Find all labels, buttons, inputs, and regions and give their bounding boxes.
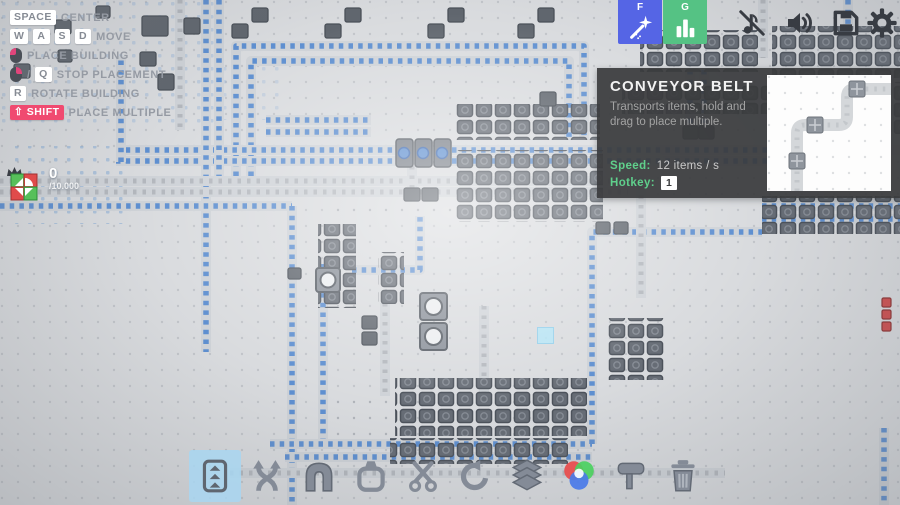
hint-place-multiple: ⇧ SHIFT PLACE MULTIPLE (10, 105, 171, 120)
toolbar-item-balancer[interactable] (241, 450, 293, 502)
tunnel-icon (300, 457, 338, 495)
key-r: R (10, 86, 26, 101)
goal-count: 0 (49, 166, 79, 181)
hint-center: SPACE CENTER (10, 10, 171, 25)
toolbar-item-rotater[interactable] (449, 450, 501, 502)
crowned-shape-icon (5, 164, 43, 202)
toolbar-item-tunnel[interactable] (293, 450, 345, 502)
speaker-icon (784, 7, 816, 39)
stacker-icon (508, 457, 546, 495)
toolbar-item-cutter[interactable] (397, 450, 449, 502)
settings-button[interactable] (866, 7, 898, 39)
mixer-icon (560, 457, 598, 495)
key-a: A (33, 29, 49, 44)
sound-button[interactable] (784, 7, 816, 39)
bar-chart-icon (670, 13, 700, 41)
painter-icon (612, 457, 650, 495)
gear-icon (866, 7, 898, 39)
key-space: SPACE (10, 10, 56, 25)
building-toolbar (189, 450, 709, 502)
mouse-right-click-icon (10, 67, 22, 82)
balancer-icon (248, 457, 286, 495)
hint-rotate: R ROTATE BUILDING (10, 86, 171, 101)
cursor-tile-highlight (538, 328, 553, 343)
belt-preview-image (767, 75, 891, 191)
music-button[interactable] (736, 8, 768, 40)
goal-indicator: 0 /10.000 (5, 164, 79, 202)
toolbar-item-extractor[interactable] (345, 450, 397, 502)
goal-target: /10.000 (49, 181, 79, 191)
hotkey-keycap: 1 (661, 176, 677, 190)
speed-value: 12 items / s (657, 160, 719, 172)
music-note-muted-icon (737, 8, 767, 38)
save-button[interactable] (830, 7, 862, 39)
toolbar-item-belt[interactable] (189, 450, 241, 502)
magic-wand-icon (625, 13, 655, 41)
key-w: W (10, 29, 28, 44)
toolbar-item-stacker[interactable] (501, 450, 553, 502)
keybind-hints: SPACE CENTER W A S D MOVE PLACE BUILDING… (10, 10, 171, 124)
toolbar-item-trash[interactable] (657, 450, 709, 502)
key-s: S (55, 29, 71, 44)
key-shift: ⇧ SHIFT (10, 105, 64, 120)
stats-button[interactable]: G (663, 0, 707, 44)
tooltip-description: Transports items, hold and drag to place… (610, 100, 770, 130)
toolbar-item-mixer[interactable] (553, 450, 605, 502)
tooltip-hotkey-row: Hotkey: 1 (610, 176, 677, 190)
extractor-icon (352, 457, 390, 495)
floppy-disk-icon (830, 7, 862, 39)
building-tooltip: CONVEYOR BELT Transports items, hold and… (597, 68, 900, 198)
key-q: Q (35, 67, 52, 82)
cutter-icon (404, 457, 442, 495)
game-viewport: SPACE CENTER W A S D MOVE PLACE BUILDING… (0, 0, 900, 505)
key-d: D (75, 29, 91, 44)
belt-icon (196, 457, 234, 495)
wand-button[interactable]: F (618, 0, 662, 44)
rotater-icon (456, 457, 494, 495)
mouse-left-click-icon (10, 48, 22, 63)
hint-place-building: PLACE BUILDING (10, 48, 171, 63)
trash-icon (664, 457, 702, 495)
hint-stop-placement: / Q STOP PLACEMENT (10, 67, 171, 82)
tooltip-speed-row: Speed: 12 items / s (610, 160, 719, 172)
red-shape-items (882, 298, 891, 331)
hint-move: W A S D MOVE (10, 29, 171, 44)
toolbar-item-painter[interactable] (605, 450, 657, 502)
tooltip-title: CONVEYOR BELT (610, 78, 754, 95)
